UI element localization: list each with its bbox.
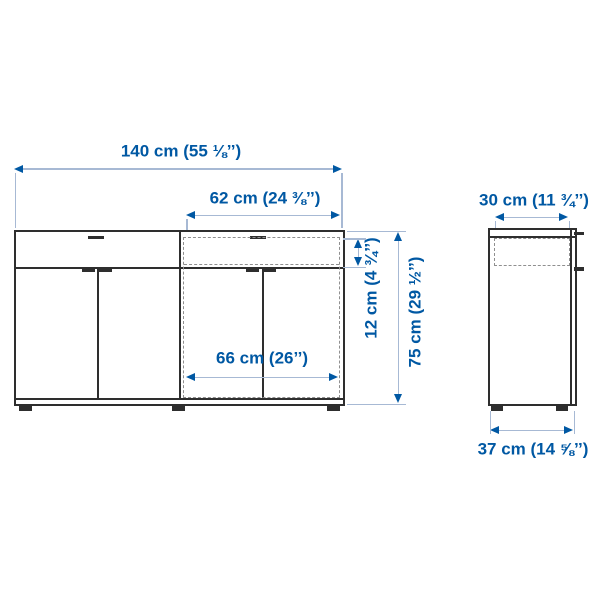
arrowhead-right-icon <box>329 373 338 381</box>
side-foot-front <box>491 406 503 411</box>
arrowhead-up-icon <box>354 239 362 248</box>
arrowhead-up-icon <box>394 232 402 241</box>
front-door-handle-1 <box>82 269 95 272</box>
arrowhead-right-icon <box>331 211 340 219</box>
dim-highlight-unit-width-line <box>194 215 332 217</box>
front-drawer-handle-left <box>88 236 104 239</box>
highlight-unit-outline <box>183 237 340 398</box>
extension-line <box>574 411 576 434</box>
front-foot-center <box>172 406 185 411</box>
side-door-handle-profile <box>574 267 584 271</box>
dim-door-section-width-line <box>194 377 331 379</box>
dim-top-depth-label: 30 cm (11 ¾’’) <box>479 192 589 209</box>
extension-line <box>343 238 366 240</box>
dim-base-depth-line <box>498 430 565 432</box>
front-door-divider-left <box>97 269 99 398</box>
arrowhead-down-icon <box>354 257 362 266</box>
extension-line <box>186 219 188 230</box>
front-door-handle-2 <box>99 269 112 272</box>
dim-overall-width-label: 140 cm (55 ⅛’’) <box>121 143 241 160</box>
extension-line <box>495 221 497 228</box>
dim-door-section-width-label: 66 cm (26’’) <box>216 350 308 367</box>
extension-line <box>15 173 17 228</box>
side-foot-back <box>556 406 568 411</box>
dim-top-depth-line <box>503 217 560 219</box>
dim-overall-height-line <box>398 240 400 396</box>
arrowhead-right-icon <box>333 165 342 173</box>
dim-overall-width-line <box>22 168 334 170</box>
extension-line <box>343 267 366 269</box>
arrowhead-right-icon <box>564 426 573 434</box>
front-foot-right <box>327 406 340 411</box>
extension-line <box>341 173 343 228</box>
extension-line <box>569 221 571 228</box>
arrowhead-left-icon <box>495 213 504 221</box>
side-front-panel-line <box>570 230 572 404</box>
arrowhead-down-icon <box>394 394 402 403</box>
front-foot-left <box>19 406 32 411</box>
arrowhead-right-icon <box>559 213 568 221</box>
extension-line <box>347 404 406 406</box>
side-drawer-handle-profile <box>574 232 584 236</box>
arrowhead-left-icon <box>490 426 499 434</box>
highlight-drawer-line <box>184 264 339 265</box>
front-center-divider <box>179 232 181 398</box>
dimension-diagram: 140 cm (55 ⅛’’) 62 cm (24 ⅜’’) 12 cm (4 … <box>0 0 600 600</box>
dim-drawer-height-label: 12 cm (4 ¾’’) <box>363 237 380 338</box>
extension-line <box>347 231 406 233</box>
dim-base-depth-label: 37 cm (14 ⅝’’) <box>478 441 589 458</box>
front-base-line <box>16 398 343 400</box>
arrowhead-left-icon <box>186 373 195 381</box>
arrowhead-left-icon <box>14 165 23 173</box>
side-highlight-drawer-outline <box>494 238 570 266</box>
arrowhead-left-icon <box>186 211 195 219</box>
dim-highlight-unit-width-label: 62 cm (24 ⅜’’) <box>210 190 321 207</box>
dim-overall-height-label: 75 cm (29 ½’’) <box>407 257 424 368</box>
extension-line <box>490 411 492 434</box>
